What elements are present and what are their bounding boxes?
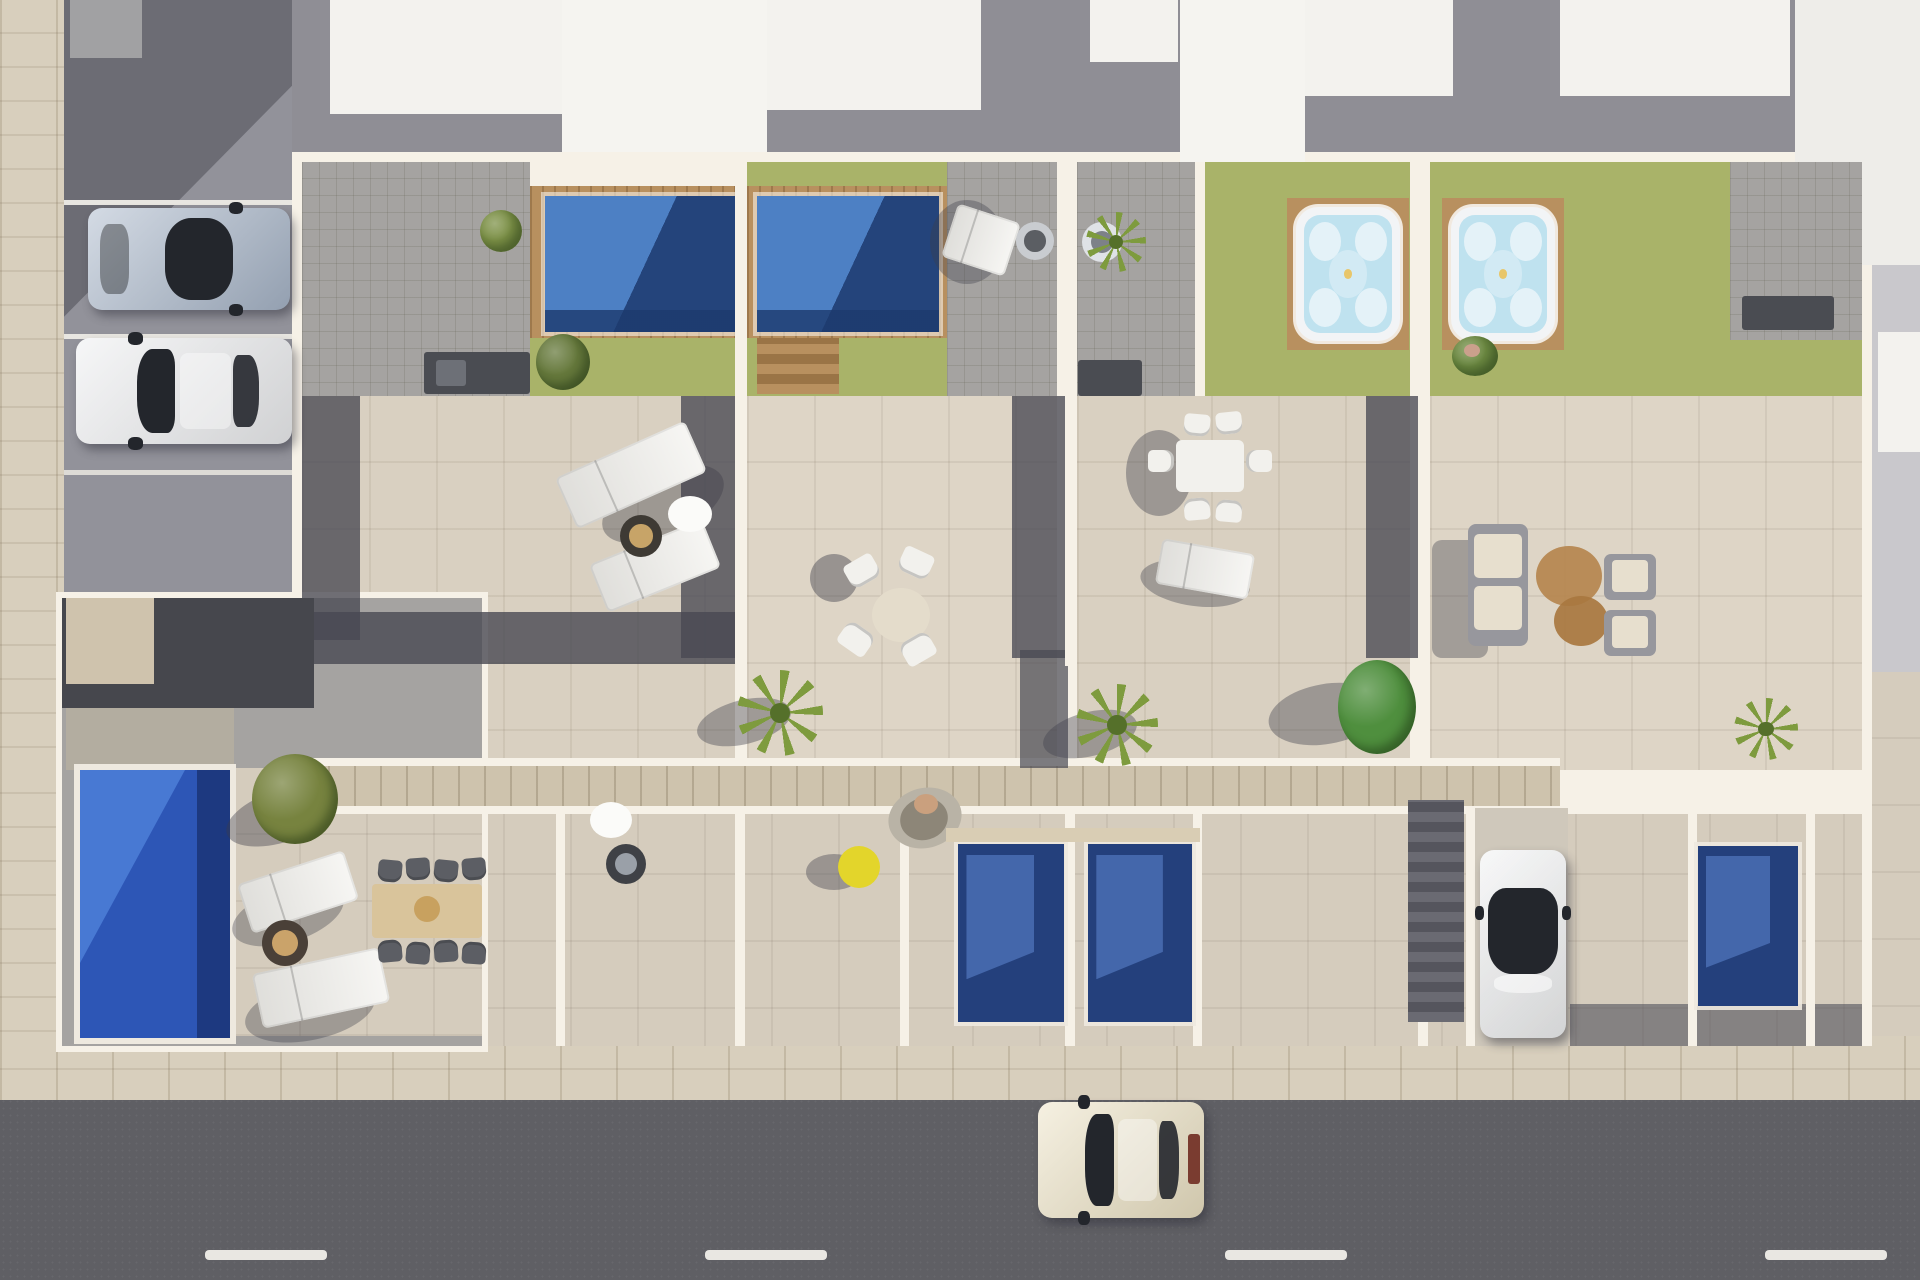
unit2-pool bbox=[757, 196, 939, 332]
palm-tree bbox=[737, 670, 823, 756]
white-sedan bbox=[72, 336, 296, 446]
unit3-palm bbox=[1086, 212, 1146, 272]
roof-slab bbox=[1560, 0, 1790, 96]
dining3-table bbox=[1176, 440, 1244, 492]
ground-wall bbox=[556, 808, 565, 1046]
balcony-parapet bbox=[302, 758, 1560, 766]
dining-chair-dark bbox=[433, 939, 458, 963]
terrace-shadow-strip bbox=[1366, 396, 1420, 658]
unit-wall bbox=[735, 396, 743, 666]
ground-level-ledge bbox=[302, 806, 1862, 814]
sidewalk-left-vertical bbox=[0, 0, 64, 768]
dining-chair-dark bbox=[377, 859, 403, 883]
yellow-table bbox=[838, 846, 880, 888]
stairs-down bbox=[1408, 800, 1464, 1022]
unit4-bbq-counter bbox=[1742, 296, 1834, 330]
palm-tree bbox=[1076, 684, 1158, 766]
side-table-dark bbox=[262, 920, 308, 966]
unit1-lower-roof bbox=[302, 612, 735, 664]
lap-pool bbox=[958, 844, 1064, 1022]
palm-tree bbox=[1734, 698, 1798, 760]
lap-pool bbox=[1698, 846, 1798, 1006]
egg-chair-pillow bbox=[914, 794, 938, 814]
parasol-top bbox=[590, 802, 632, 838]
ground-wall bbox=[1193, 808, 1202, 1046]
dining-chair-dark bbox=[405, 941, 431, 965]
unit1-lawn-tree bbox=[536, 334, 590, 390]
ground-shadow-band bbox=[1570, 1004, 1862, 1046]
sofa-cushion bbox=[1474, 534, 1522, 578]
dining-chair bbox=[1148, 450, 1174, 472]
unit3-bbq-counter bbox=[1078, 360, 1142, 396]
roof-slab bbox=[1305, 0, 1453, 96]
unit-wall bbox=[1065, 396, 1073, 666]
round-rug bbox=[1536, 546, 1602, 606]
round-rug bbox=[1554, 596, 1608, 646]
dining-chair bbox=[1183, 413, 1211, 437]
dining-chair-dark bbox=[405, 857, 430, 881]
dining-chair-dark bbox=[461, 941, 486, 965]
fire-bowl bbox=[1016, 222, 1054, 260]
coffee-table bbox=[620, 515, 662, 557]
roof-slab bbox=[562, 0, 767, 152]
lap-pool bbox=[1088, 844, 1192, 1022]
rose-bloom bbox=[1464, 344, 1480, 357]
dining-chair bbox=[1215, 499, 1243, 523]
parking-stall-line bbox=[64, 470, 292, 475]
sofa-cushion bbox=[1474, 586, 1522, 630]
parking-stall-line bbox=[64, 200, 292, 205]
road-dash bbox=[705, 1250, 827, 1260]
aerial-render-scene bbox=[0, 0, 1920, 1280]
road-dash bbox=[1225, 1250, 1347, 1260]
hot-tub bbox=[1451, 207, 1555, 341]
terrace-shadow-strip bbox=[1012, 396, 1067, 658]
sports-car bbox=[84, 206, 294, 312]
unit1-bbq-sink bbox=[436, 360, 466, 386]
dining-chair bbox=[1183, 497, 1211, 521]
dining-chair bbox=[1215, 411, 1243, 436]
roof-patch bbox=[1878, 332, 1920, 452]
ground-wall bbox=[1806, 808, 1815, 1046]
ground-wall bbox=[1466, 808, 1475, 1046]
unit4-lawn-strip bbox=[1730, 340, 1862, 396]
unit2-wood-steps bbox=[757, 338, 839, 394]
armchair-cushion bbox=[1612, 560, 1648, 592]
unit-wall bbox=[1418, 396, 1426, 666]
unit1-round-tree bbox=[480, 210, 522, 252]
side-table-dark bbox=[606, 844, 646, 884]
dining-chair-dark bbox=[433, 859, 459, 883]
roof-slab bbox=[1090, 0, 1178, 62]
dining-chair bbox=[1246, 450, 1272, 472]
garden-pool bbox=[80, 770, 230, 1038]
roof-slab bbox=[767, 0, 981, 110]
roof-slab bbox=[1180, 0, 1305, 162]
serving-board bbox=[414, 896, 440, 922]
unit1-pool bbox=[545, 196, 735, 332]
road-dash bbox=[1765, 1250, 1887, 1260]
cream-car bbox=[1035, 1100, 1207, 1220]
parasol-top bbox=[668, 496, 712, 532]
armchair-cushion bbox=[1612, 616, 1648, 648]
fiddle-leaf-plant bbox=[1338, 660, 1416, 754]
garden-cobbles bbox=[66, 708, 234, 770]
roof-slab bbox=[330, 0, 562, 114]
road-dash bbox=[205, 1250, 327, 1260]
dining-chair-dark bbox=[461, 857, 487, 881]
ground-wall bbox=[1688, 808, 1697, 1046]
ground-wall bbox=[1065, 808, 1075, 1046]
ground-wall bbox=[735, 808, 745, 1046]
cream-car-tail bbox=[1188, 1134, 1200, 1184]
dining-chair-dark bbox=[377, 939, 403, 963]
white-suv bbox=[1478, 846, 1568, 1042]
garden-tree bbox=[252, 754, 338, 844]
garden-roof-slab bbox=[66, 598, 154, 684]
hot-tub bbox=[1296, 207, 1400, 341]
pool-beam bbox=[946, 828, 1200, 842]
